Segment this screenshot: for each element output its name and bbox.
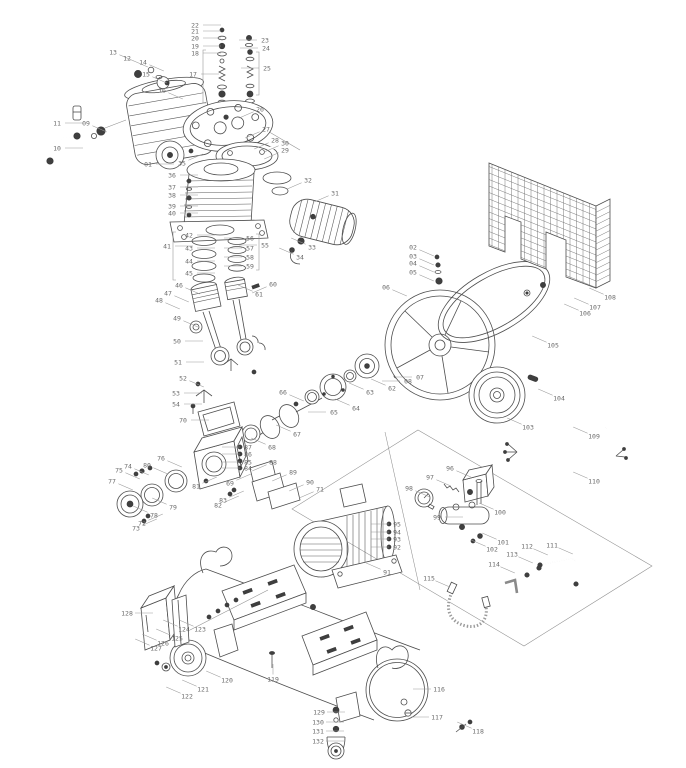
part-label-83: 83 — [219, 496, 227, 504]
part-label-11: 11 — [53, 119, 61, 127]
part-label-20: 20 — [191, 34, 199, 42]
part-label-101: 101 — [497, 538, 509, 546]
leader-line — [574, 298, 588, 304]
part-label-52: 52 — [179, 374, 187, 382]
part-label-124: 124 — [178, 625, 190, 633]
part-label-76: 76 — [157, 454, 165, 462]
connecting-rod-left — [203, 311, 229, 365]
part-label-01: 01 — [144, 160, 152, 168]
crankshaft — [252, 398, 322, 442]
part-label-73: 73 — [132, 524, 140, 532]
part-label-94: 94 — [393, 528, 401, 536]
part-label-97: 97 — [426, 473, 434, 481]
part-label-79: 79 — [169, 503, 177, 511]
part-label-80: 80 — [143, 461, 151, 469]
drain-plug — [405, 710, 411, 716]
part-label-67: 67 — [293, 430, 301, 438]
leader-line — [314, 196, 328, 202]
part-label-91: 91 — [383, 568, 391, 576]
pressure-switch — [463, 465, 494, 502]
part-label-88: 88 — [269, 458, 277, 466]
part-label-86: 86 — [244, 450, 252, 458]
part-label-121: 121 — [197, 685, 209, 693]
part-label-119: 119 — [267, 675, 279, 683]
part-label-14: 14 — [139, 58, 147, 66]
part-label-50: 50 — [173, 337, 181, 345]
part-label-104: 104 — [553, 394, 565, 402]
part-label-71: 71 — [316, 485, 324, 493]
part-label-33: 33 — [308, 243, 316, 251]
part-label-29: 29 — [281, 146, 289, 154]
leader-line — [167, 461, 181, 467]
power-cables — [504, 423, 628, 490]
part-label-113: 113 — [506, 550, 518, 558]
saddle-plate-rear — [302, 612, 377, 675]
leader-line — [507, 418, 521, 424]
part-label-95: 95 — [393, 520, 401, 528]
inlet-pipe-fittings — [47, 106, 126, 164]
part-label-123: 123 — [194, 625, 206, 633]
part-label-96: 96 — [446, 464, 454, 472]
part-label-47: 47 — [164, 289, 172, 297]
leader-line — [335, 399, 349, 405]
part-label-34: 34 — [296, 253, 304, 261]
part-label-127: 127 — [150, 644, 162, 652]
leader-line — [538, 389, 552, 395]
diagram-canvas: 0102030405060708091011121314151617181920… — [0, 0, 686, 768]
part-label-49: 49 — [173, 314, 181, 322]
part-label-51: 51 — [174, 358, 182, 366]
saddle-plate-front — [222, 565, 306, 630]
part-label-15: 15 — [142, 70, 150, 78]
part-label-58: 58 — [246, 253, 254, 261]
part-label-103: 103 — [522, 423, 534, 431]
part-label-81: 81 — [192, 482, 200, 490]
leader-line — [419, 266, 433, 272]
part-label-04: 04 — [409, 259, 417, 267]
part-label-24: 24 — [262, 44, 270, 52]
part-label-38: 38 — [168, 191, 176, 199]
part-label-18: 18 — [191, 49, 199, 57]
outlet-pipe-111 — [525, 558, 578, 586]
leader-line — [153, 468, 167, 474]
part-label-129: 129 — [313, 708, 325, 716]
connecting-rod-right — [233, 299, 265, 355]
part-label-16: 16 — [158, 86, 166, 94]
part-label-92: 92 — [393, 543, 401, 551]
cylinder-block — [170, 159, 268, 242]
leader-line — [287, 183, 301, 189]
part-label-120: 120 — [221, 676, 233, 684]
part-label-22: 22 — [191, 21, 199, 29]
leader-line — [419, 275, 433, 281]
part-label-31: 31 — [331, 189, 339, 197]
part-label-59: 59 — [246, 262, 254, 270]
part-label-54: 54 — [172, 400, 180, 408]
part-label-40: 40 — [168, 209, 176, 217]
leader-line — [182, 680, 196, 686]
part-label-75: 75 — [115, 466, 123, 474]
part-label-112: 112 — [521, 542, 533, 550]
part-label-78: 78 — [150, 511, 158, 519]
part-label-69: 69 — [226, 479, 234, 487]
pulley-key — [527, 374, 538, 382]
part-label-77: 77 — [108, 477, 116, 485]
unloader-spring — [444, 484, 459, 492]
leader-line — [482, 533, 496, 539]
part-label-105: 105 — [547, 341, 559, 349]
leader-line — [589, 288, 603, 294]
part-label-115: 115 — [423, 574, 435, 582]
leader-line — [289, 395, 303, 401]
elbow-fitting-114 — [505, 580, 517, 593]
leader-line — [436, 480, 450, 486]
motor-pulley — [469, 367, 525, 423]
part-label-70: 70 — [179, 416, 187, 424]
part-label-114: 114 — [488, 560, 500, 568]
part-label-57: 57 — [246, 244, 254, 252]
part-label-98: 98 — [405, 484, 413, 492]
part-label-28: 28 — [271, 136, 279, 144]
part-label-63: 63 — [366, 388, 374, 396]
leader-line — [573, 427, 587, 433]
parts-diagram-page: 0102030405060708091011121314151617181920… — [0, 0, 686, 768]
head-bolts-35-40 — [186, 179, 191, 217]
part-label-89: 89 — [289, 468, 297, 476]
part-label-44: 44 — [185, 257, 193, 265]
part-label-26: 26 — [256, 105, 264, 113]
leader-line — [533, 549, 547, 555]
part-label-100: 100 — [494, 508, 506, 516]
leader-line — [564, 304, 578, 310]
part-label-64: 64 — [352, 404, 360, 412]
part-label-41: 41 — [163, 242, 171, 250]
part-label-05: 05 — [409, 268, 417, 276]
part-label-60: 60 — [269, 280, 277, 288]
tank-bolts-118 — [456, 720, 472, 732]
leader-line — [189, 381, 203, 387]
part-label-99: 99 — [433, 513, 441, 521]
part-label-125: 125 — [171, 634, 183, 642]
leader-line — [165, 303, 179, 309]
leader-line — [419, 250, 433, 256]
part-label-65: 65 — [330, 408, 338, 416]
part-label-87: 87 — [244, 443, 252, 451]
part-label-55: 55 — [261, 241, 269, 249]
part-label-56: 56 — [246, 234, 254, 242]
leader-line — [149, 65, 163, 71]
piston-left — [190, 280, 221, 311]
part-label-122: 122 — [181, 692, 193, 700]
part-label-118: 118 — [472, 727, 484, 735]
wrist-pin — [190, 321, 202, 333]
leader-line — [518, 557, 532, 563]
tank-bolt-119 — [269, 652, 274, 669]
part-label-08: 08 — [404, 377, 412, 385]
part-label-61: 61 — [255, 290, 263, 298]
part-label-09: 09 — [82, 119, 90, 127]
part-label-17: 17 — [189, 70, 197, 78]
part-label-109: 109 — [588, 432, 600, 440]
part-label-25: 25 — [263, 64, 271, 72]
leader-line — [349, 383, 363, 389]
part-label-07: 07 — [416, 373, 424, 381]
part-label-107: 107 — [589, 303, 601, 311]
part-label-30: 30 — [281, 139, 289, 147]
part-label-13: 13 — [109, 48, 117, 56]
part-label-131: 131 — [312, 727, 324, 735]
part-label-12: 12 — [123, 54, 131, 62]
leader-line — [166, 687, 180, 693]
part-label-23: 23 — [261, 36, 269, 44]
part-label-48: 48 — [155, 296, 163, 304]
leader-line — [573, 472, 587, 478]
part-label-43: 43 — [185, 244, 193, 252]
part-label-68: 68 — [268, 443, 276, 451]
part-label-19: 19 — [191, 42, 199, 50]
leader-line — [392, 290, 406, 296]
part-label-02: 02 — [409, 243, 417, 251]
leader-line — [532, 336, 546, 342]
part-label-32: 32 — [304, 176, 312, 184]
part-label-116: 116 — [433, 685, 445, 693]
leader-line — [118, 484, 132, 490]
part-label-85: 85 — [244, 458, 252, 466]
leader-line — [174, 296, 188, 302]
part-label-46: 46 — [175, 281, 183, 289]
part-label-10: 10 — [53, 144, 61, 152]
part-label-128: 128 — [121, 609, 133, 617]
part-label-110: 110 — [588, 477, 600, 485]
part-label-42: 42 — [185, 231, 193, 239]
part-label-36: 36 — [168, 171, 176, 179]
part-label-111: 111 — [546, 541, 558, 549]
part-label-90: 90 — [306, 478, 314, 486]
part-label-132: 132 — [312, 737, 324, 745]
part-label-62: 62 — [388, 384, 396, 392]
part-label-53: 53 — [172, 389, 180, 397]
part-label-27: 27 — [262, 125, 270, 133]
part-label-37: 37 — [168, 183, 176, 191]
leader-line — [371, 379, 385, 385]
leader-line — [435, 581, 449, 587]
flywheel-bolt-stack — [435, 255, 442, 284]
leader-line — [206, 671, 220, 677]
part-label-74: 74 — [124, 462, 132, 470]
part-label-102: 102 — [486, 545, 498, 553]
part-label-93: 93 — [393, 535, 401, 543]
part-label-130: 130 — [312, 718, 324, 726]
part-label-108: 108 — [604, 293, 616, 301]
part-label-35: 35 — [178, 159, 186, 167]
part-label-45: 45 — [185, 269, 193, 277]
leader-line — [500, 567, 514, 573]
part-label-06: 06 — [382, 283, 390, 291]
leader-line — [419, 259, 433, 265]
leader-line — [558, 548, 572, 554]
part-label-66: 66 — [279, 388, 287, 396]
part-label-117: 117 — [431, 713, 443, 721]
